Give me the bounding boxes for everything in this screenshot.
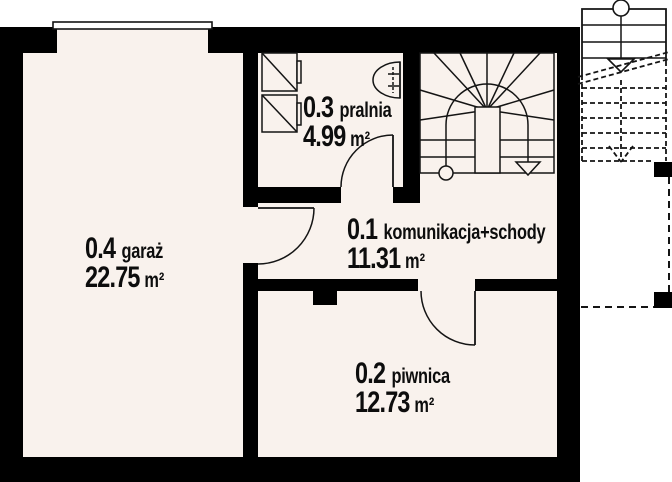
staircase-upper — [578, 0, 669, 162]
stair-hidden-treads — [582, 61, 666, 162]
floor-above-outline — [581, 162, 672, 308]
room-number: 0.2 — [355, 361, 385, 387]
pier — [654, 162, 672, 177]
room-number: 0.1 — [347, 217, 377, 243]
room-area: 12.73 — [355, 390, 410, 416]
room-area: 4.99 — [303, 124, 345, 150]
window — [53, 22, 212, 29]
washing-machine-icon — [262, 95, 301, 132]
room-label-pralnia: 0.3 pralnia 4.99 m² — [303, 95, 392, 153]
area-unit: m² — [414, 393, 434, 419]
room-name: komunikacja+schody — [383, 220, 545, 246]
washing-machine-icon — [262, 53, 301, 91]
room-area: 11.31 — [347, 246, 400, 272]
area-unit: m² — [350, 127, 370, 153]
room-label-garaz: 0.4 garaż 22.75 m² — [85, 236, 164, 294]
stair-walk-line-circle — [613, 0, 629, 16]
stair-spine — [475, 107, 500, 173]
pier — [654, 292, 672, 308]
stair-walk-line-circle — [439, 166, 453, 180]
room-number: 0.3 — [303, 95, 333, 121]
room-name: pralnia — [339, 98, 391, 124]
floor-plan: 0.4 garaż 22.75 m² 0.3 pralnia 4.99 m² 0… — [0, 0, 672, 482]
room-label-piwnica: 0.2 piwnica 12.73 m² — [355, 361, 450, 419]
room-number: 0.4 — [85, 236, 115, 262]
room-label-komunikacja: 0.1 komunikacja+schody 11.31 m² — [347, 217, 545, 275]
room-area: 22.75 — [85, 265, 140, 291]
area-unit: m² — [405, 249, 425, 275]
area-unit: m² — [144, 268, 164, 294]
